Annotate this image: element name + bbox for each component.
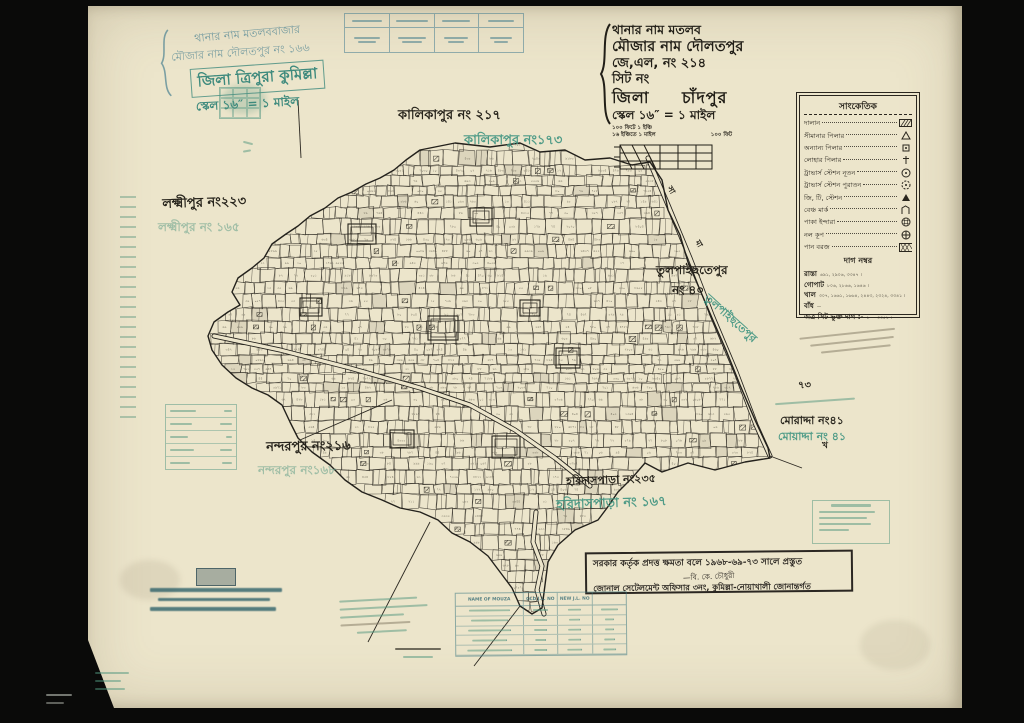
svg-text:৪৯: ৪৯: [463, 348, 467, 352]
svg-text:৬৯৪: ৬৯৪: [288, 358, 294, 362]
svg-text:১২: ১২: [530, 487, 534, 491]
svg-text:৪৭৮১: ৪৭৮১: [620, 325, 628, 329]
svg-text:২৮৭: ২৮৭: [407, 451, 413, 455]
svg-text:৭৮০: ৭৮০: [647, 386, 653, 390]
svg-text:৯২: ৯২: [512, 237, 516, 241]
svg-text:৭৯: ৭৯: [579, 189, 583, 193]
svg-text:৮২২: ৮২২: [368, 425, 374, 429]
svg-text:৪৮৩: ৪৮৩: [594, 237, 600, 241]
district-label: জিলা: [612, 88, 649, 107]
legend-item-label: ট্রাভার্স স্টেশন নূতন: [804, 167, 855, 179]
svg-text:৭২: ৭২: [294, 274, 298, 278]
svg-text:৭২: ৭২: [610, 439, 614, 443]
svg-text:১৫: ১৫: [341, 386, 345, 390]
svg-text:০৫৭: ০৫৭: [255, 299, 261, 303]
svg-text:২৯৬: ২৯৬: [690, 348, 696, 352]
legend-item: অন্যান্য পিলার: [804, 142, 912, 154]
svg-text:০৫৫: ০৫৫: [462, 500, 468, 504]
svg-text:৩৮: ৩৮: [380, 451, 384, 455]
svg-text:৫৬: ৫৬: [323, 325, 327, 329]
svg-text:০১: ০১: [480, 398, 484, 402]
svg-text:৭৭: ৭৭: [549, 211, 553, 215]
svg-text:০৯০৮: ০৯০৮: [693, 398, 701, 402]
svg-text:৫৬৪: ৫৬৪: [308, 425, 314, 429]
svg-text:৮০: ৮০: [397, 313, 401, 317]
svg-text:৪৪৩: ৪৪৩: [417, 211, 423, 215]
dag-row: খাল৩০৭, ১৬৬১, ১৬৬৪, ২৪৪৩, ২৩২৪, ৩৩৪১ ।: [804, 289, 912, 300]
svg-text:৫২৩: ৫২৩: [732, 451, 738, 455]
svg-text:৪২৮: ৪২৮: [296, 398, 302, 402]
svg-text:৯১৮৩: ৯১৮৩: [565, 156, 573, 160]
legend-item: সীমানার পিলার: [804, 129, 912, 141]
gt-station-icon: [899, 193, 912, 202]
svg-text:৩০: ৩০: [496, 412, 500, 416]
svg-text:০৬: ০৬: [713, 425, 717, 429]
svg-text:৫৭: ৫৭: [690, 451, 694, 455]
svg-text:৪৮: ৪৮: [615, 425, 619, 429]
svg-text:৫২৯: ৫২৯: [608, 313, 614, 317]
svg-text:৭৬৫: ৭৬৫: [511, 169, 517, 173]
table-column: [390, 14, 435, 52]
dag-row: রাস্তা৬৯১, ২৯০৬, ৩৩৪৭ ।: [804, 268, 912, 279]
svg-text:০০৯: ০০৯: [538, 249, 544, 253]
svg-text:০৭৬: ০৭৬: [676, 439, 682, 443]
svg-text:১৬৬: ১৬৬: [406, 237, 412, 241]
svg-text:২৬৫: ২৬৫: [724, 412, 730, 416]
press-stamp: [150, 588, 290, 611]
svg-text:১৫: ১৫: [508, 348, 512, 352]
svg-text:৪৬০: ৪৬০: [713, 348, 719, 352]
svg-text:৮৪: ৮৪: [436, 412, 440, 416]
svg-text:১৫: ১৫: [314, 249, 318, 253]
svg-text:৩১৩: ৩১৩: [489, 398, 495, 402]
svg-text:৬১: ৬১: [346, 475, 350, 479]
svg-text:৪৪: ৪৪: [435, 451, 439, 455]
svg-text:১৫: ১৫: [431, 299, 435, 303]
svg-text:৬২৮: ৬২৮: [503, 564, 509, 568]
svg-text:৮৯০: ৮৯০: [696, 412, 702, 416]
svg-text:৪০: ৪০: [414, 348, 418, 352]
svg-text:৭১৫৪: ৭১৫৪: [643, 189, 651, 193]
svg-text:৩৫৭: ৩৫৭: [592, 211, 598, 215]
svg-text:৬৪২৭: ৬৪২৭: [581, 249, 589, 253]
svg-text:৭৫৬: ৭৫৬: [445, 299, 451, 303]
svg-text:১৮২: ১৮২: [455, 527, 461, 531]
svg-text:২২৪: ২২৪: [294, 348, 300, 352]
district-value: চাঁদপুর: [682, 88, 727, 107]
svg-text:৯৪২: ৯৪২: [410, 261, 416, 265]
svg-text:৫৮৬: ৫৮৬: [400, 200, 406, 204]
svg-text:৮১১: ৮১১: [505, 541, 511, 545]
svg-text:১৫৫: ১৫৫: [503, 299, 509, 303]
svg-text:২৩: ২৩: [446, 237, 450, 241]
svg-text:৭০৩: ৭০৩: [496, 386, 502, 390]
svg-text:৫৯: ৫৯: [241, 313, 245, 317]
table-column: [345, 14, 390, 52]
svg-text:৭৭১: ৭৭১: [719, 398, 725, 402]
svg-text:২১: ২১: [261, 261, 265, 265]
svg-text:১৯: ১৯: [283, 325, 287, 329]
svg-text:০৮৯৩: ০৮৯৩: [256, 358, 264, 362]
bench-mark-icon: [899, 205, 912, 215]
svg-text:৩৮: ৩৮: [429, 274, 433, 278]
map-label: তুলপাইছতেপুর: [656, 262, 728, 282]
svg-text:৭৩৮: ৭৩৮: [693, 325, 699, 329]
svg-text:৭১: ৭১: [584, 451, 588, 455]
svg-text:১২৬: ১২৬: [364, 225, 370, 229]
diagonal-scale-bar: [612, 141, 716, 175]
svg-text:৩১২: ৩১২: [725, 386, 731, 390]
svg-text:৬৫৯: ৬৫৯: [408, 358, 414, 362]
svg-text:৩৪২: ৩৪২: [226, 348, 232, 352]
svg-text:৭২: ৭২: [437, 487, 441, 491]
svg-text:৫৮৭৭: ৫৮৭৭: [705, 376, 713, 380]
svg-text:৪৬৭: ৪৬৭: [581, 313, 587, 317]
svg-text:৭৯১: ৭৯১: [243, 367, 249, 371]
svg-text:৪৬২: ৪৬২: [365, 386, 371, 390]
svg-text:৮৫০: ৮৫০: [555, 425, 561, 429]
legend-item: দালান: [804, 117, 912, 129]
map-label: হরিদাসপাড়া নং ১৬৭: [556, 492, 667, 517]
svg-text:০০৮৯: ০০৮৯: [416, 249, 424, 253]
svg-text:৮০৬: ৮০৬: [593, 367, 599, 371]
svg-text:৩৯১: ৩৯১: [417, 325, 423, 329]
svg-text:৭৮৭২: ৭৮৭২: [363, 376, 371, 380]
svg-text:১০: ১০: [638, 376, 642, 380]
svg-text:২০: ২০: [478, 299, 482, 303]
svg-text:৫৭: ৫৭: [479, 249, 483, 253]
svg-text:১০৯: ১০৯: [489, 179, 495, 183]
svg-text:৫৩০: ৫৩০: [613, 376, 619, 380]
svg-text:১৫: ১৫: [654, 237, 658, 241]
svg-text:১৭২: ১৭২: [553, 475, 559, 479]
svg-text:৫১: ৫১: [677, 313, 681, 317]
svg-text:৭৮: ৭৮: [527, 425, 531, 429]
svg-text:৭৫: ৭৫: [559, 358, 563, 362]
svg-text:১৭৯: ১৭৯: [534, 225, 540, 229]
svg-text:৭৬২৫: ৭৬২৫: [592, 376, 600, 380]
svg-text:১২: ১২: [231, 367, 235, 371]
svg-text:৭২১: ৭২১: [412, 337, 418, 341]
legend-item: ট্রাভার্স স্টেশন পুরাতন: [804, 179, 912, 191]
svg-text:৮৮: ৮৮: [713, 367, 717, 371]
svg-text:২৫: ২৫: [358, 348, 362, 352]
svg-text:২০৩২: ২০৩২: [517, 386, 525, 390]
svg-text:৬৩৪: ৬৩৪: [322, 237, 328, 241]
svg-text:১১: ১১: [668, 313, 672, 317]
svg-text:৩০: ৩০: [564, 211, 568, 215]
svg-text:১০: ১০: [433, 169, 437, 173]
svg-text:৬৯: ৬৯: [599, 398, 603, 402]
legend-item: বেঞ্চ মার্ক: [804, 204, 912, 216]
svg-text:২০৪৩: ২০৪৩: [532, 156, 540, 160]
svg-text:২৯০: ২৯০: [677, 325, 683, 329]
svg-text:৫০২: ৫০২: [569, 439, 575, 443]
svg-text:৪৯০: ৪৯০: [590, 337, 596, 341]
svg-text:৬৮৭১: ৬৮৭১: [568, 425, 576, 429]
svg-text:৮৩: ৮৩: [302, 386, 306, 390]
svg-text:৭৫৩: ৭৫৩: [676, 451, 682, 455]
other-pillar-icon: [899, 144, 912, 152]
svg-text:১৩: ১৩: [267, 286, 271, 290]
legend-title: সাংকেতিক: [804, 99, 912, 115]
svg-text:৯৪৭: ৯৪৭: [266, 367, 272, 371]
svg-text:১২১: ১২১: [520, 348, 526, 352]
svg-text:২৭: ২৭: [626, 200, 630, 204]
sheet-number: সিট নং: [612, 72, 812, 88]
svg-text:৬৯: ৬৯: [222, 325, 226, 329]
svg-text:৪৯৫: ৪৯৫: [643, 337, 649, 341]
svg-text:৩৫: ৩৫: [277, 286, 281, 290]
svg-text:৬১৭: ৬১৭: [548, 169, 554, 173]
svg-text:৮১২: ৮১২: [448, 358, 454, 362]
svg-text:১৯: ১৯: [543, 274, 547, 278]
svg-text:২৮৯: ২৮৯: [523, 367, 529, 371]
svg-text:৪৪: ৪৪: [258, 376, 262, 380]
left-reference-table: [165, 404, 237, 470]
svg-text:৩৬৪: ৩৬৪: [644, 211, 650, 215]
svg-text:২৮৭: ২৮৭: [487, 358, 493, 362]
svg-text:৩৩৮: ৩৩৮: [574, 451, 580, 455]
svg-text:০৯: ০৯: [647, 451, 651, 455]
dag-row: অত্র সিট ভুক্ত দাগ :-১ — ৩৩৫১ ।: [804, 311, 912, 322]
svg-text:৪০৪: ৪০৪: [572, 412, 578, 416]
svg-text:৬৭২: ৬৭২: [357, 286, 363, 290]
map-label: মোয়াদ্দা নং ৪১: [778, 428, 846, 447]
svg-text:৭৩৫: ৭৩৫: [535, 358, 541, 362]
svg-text:৯৪: ৯৪: [616, 451, 620, 455]
svg-text:২৩৩: ২৩৩: [538, 527, 544, 531]
small-stamp-box: [196, 568, 236, 586]
svg-text:২৬৭: ২৬৭: [535, 325, 541, 329]
svg-text:১৮১: ১৮১: [320, 398, 326, 402]
svg-text:৭১০: ৭১০: [546, 386, 552, 390]
svg-text:০৯৩: ০৯৩: [458, 200, 464, 204]
pan-boroj-icon: [899, 243, 912, 252]
svg-text:১৯০: ১৯০: [427, 462, 433, 466]
svg-text:৫০: ৫০: [663, 398, 667, 402]
svg-text:৯৩: ৯৩: [515, 564, 519, 568]
svg-text:০৮: ০৮: [588, 286, 592, 290]
svg-text:৩৫১: ৩৫১: [419, 274, 425, 278]
svg-text:৮৮: ৮৮: [478, 367, 482, 371]
map-label: লক্ষ্মীপুর নং ১৬৫: [158, 219, 240, 239]
svg-text:৫৬: ৫৬: [383, 398, 387, 402]
svg-text:৯৭৬: ৯৭৬: [441, 261, 447, 265]
table-column: [479, 14, 523, 52]
svg-text:৭৫৮: ৭৫৮: [592, 189, 598, 193]
svg-text:৭৪: ৭৪: [567, 313, 571, 317]
svg-text:৩০৫৪: ৩০৫৪: [396, 169, 404, 173]
svg-text:৪০: ৪০: [672, 462, 676, 466]
legend-item-label: ট্রাভার্স স্টেশন পুরাতন: [804, 179, 861, 191]
svg-text:৬১: ৬১: [417, 475, 421, 479]
svg-text:৯৯৯: ৯৯৯: [413, 462, 419, 466]
scale-note-2: ১৬ ইঞ্চিতে ১ মাইল ১০০ ফিট: [612, 132, 732, 139]
svg-text:৮৪০৪: ৮৪০৪: [636, 225, 644, 229]
svg-text:৮৬: ৮৬: [460, 439, 464, 443]
svg-text:৫৬৯: ৫৬৯: [237, 325, 243, 329]
svg-text:৬১: ৬১: [493, 367, 497, 371]
svg-text:৭২২৯: ৭২২৯: [450, 475, 458, 479]
svg-text:৩৩৮: ৩৩৮: [532, 451, 538, 455]
svg-text:৯৮৬: ৯৮৬: [435, 425, 441, 429]
map-label: নং ৪০: [672, 282, 704, 302]
svg-text:৬৩৫: ৬৩৫: [375, 225, 381, 229]
mini-reference-grid: [219, 87, 261, 119]
svg-text:৫১: ৫১: [543, 500, 547, 504]
legend-item: পাকা ইন্দারা: [804, 216, 912, 228]
svg-text:৩১৮: ৩১৮: [700, 348, 706, 352]
svg-text:২১: ২১: [355, 425, 359, 429]
svg-text:৫৫৫৬: ৫৫৫৬: [531, 179, 539, 183]
svg-text:৭০: ৭০: [287, 376, 291, 380]
svg-text:০২২৮: ০২২৮: [429, 325, 437, 329]
svg-text:২৬৫: ২৬৫: [470, 200, 476, 204]
svg-text:৯৭: ৯৭: [374, 249, 378, 253]
svg-text:৩২৩২: ৩২৩২: [442, 514, 450, 518]
header-old-jl: OLD J.L. NO: [524, 593, 559, 605]
svg-text:৯৫২৩: ৯৫২৩: [336, 261, 344, 265]
tube-well-icon: [899, 230, 912, 240]
svg-text:৯১৮: ৯১৮: [345, 274, 351, 278]
svg-text:৫১: ৫১: [509, 412, 513, 416]
svg-text:১২২: ১২২: [474, 487, 480, 491]
svg-text:৩০২: ৩০২: [473, 261, 479, 265]
svg-text:৭২: ৭২: [595, 439, 599, 443]
svg-text:৫৬৩: ৫৬৩: [440, 386, 446, 390]
svg-text:১৪: ১৪: [551, 487, 555, 491]
svg-text:৮৫৯৭: ৮৫৯৭: [412, 412, 420, 416]
svg-text:৮২৪: ৮২৪: [747, 451, 753, 455]
map-label: নন্দরপুর নং২১৬: [266, 437, 351, 459]
svg-text:১৩৯৪: ১৩৯৪: [625, 412, 633, 416]
svg-text:৯৬: ৯৬: [460, 286, 464, 290]
svg-text:৮২৯: ৮২৯: [342, 286, 348, 290]
district-line: জিলা চাঁদপুর: [612, 88, 812, 108]
svg-text:৪৫০: ৪৫০: [423, 237, 429, 241]
svg-text:৩০: ৩০: [269, 325, 273, 329]
svg-text:১৮৪৯: ১৮৪৯: [562, 527, 570, 531]
svg-text:৪৩৫: ৪৩৫: [465, 156, 471, 160]
svg-text:০৭৫৭: ০৭৫৭: [514, 585, 522, 589]
svg-text:৮৯: ৮৯: [364, 211, 368, 215]
dag-row: বাঁধ—: [804, 300, 912, 311]
handwritten-note: [395, 648, 465, 658]
legend-item-label: লোহার পিলার: [804, 154, 841, 166]
svg-text:৮৫৪: ৮৫৪: [388, 475, 394, 479]
svg-text:৭৮০: ৭৮০: [590, 325, 596, 329]
svg-text:১৭: ১৭: [620, 261, 624, 265]
svg-text:০২: ০২: [470, 169, 474, 173]
svg-text:৫৫: ৫৫: [519, 286, 523, 290]
svg-text:৯৩৭: ৯৩৭: [652, 412, 658, 416]
map-label: হরিদাসপাড়া নং২৩৫: [566, 470, 656, 492]
map-label: ৭৩: [798, 378, 811, 395]
boundary-pillar-icon: [899, 131, 912, 140]
svg-text:৪৬৪: ৪৬৪: [568, 237, 574, 241]
map-label: কালিকাপুর নং ২১৭: [398, 106, 501, 127]
svg-text:৪১০: ৪১০: [606, 299, 612, 303]
svg-text:২০৭: ২০৭: [711, 358, 717, 362]
svg-text:৫৮৯৬: ৫৮৯৬: [269, 249, 277, 253]
mouza-name: মৌজার নাম দৌলতপুর: [612, 38, 812, 56]
svg-text:৮৯৪: ৮৯৪: [547, 358, 553, 362]
svg-text:৪০৫৬: ৪০৫৬: [487, 261, 495, 265]
jl-number: জে,এল, নং ২১৪: [612, 56, 812, 72]
svg-text:৮৩৪৫: ৮৩৪৫: [652, 376, 660, 380]
svg-text:৬২২: ৬২২: [593, 249, 599, 253]
svg-text:৬২: ৬২: [282, 398, 286, 402]
svg-text:২৮: ২৮: [554, 439, 558, 443]
svg-text:৭৬: ৭৬: [572, 358, 576, 362]
svg-text:১২: ১২: [557, 169, 561, 173]
svg-text:৪৩৫: ৪৩৫: [278, 299, 284, 303]
svg-text:৪৩৪: ৪৩৪: [362, 475, 368, 479]
svg-text:১৩৭: ১৩৭: [617, 211, 623, 215]
svg-text:৮৪: ৮৪: [387, 462, 391, 466]
svg-text:৭৭৪: ৭৭৪: [515, 527, 521, 531]
svg-text:৯০: ৯০: [466, 249, 470, 253]
svg-text:৮৬: ৮৬: [252, 337, 256, 341]
svg-text:৬৩৭: ৬৩৭: [594, 299, 600, 303]
svg-text:৫২৩৮: ৫২৩৮: [646, 179, 654, 183]
mouza-jl-table: NAME OF MOUZA OLD J.L. NO NEW J.L. NO: [455, 591, 628, 656]
svg-text:৭৩৫: ৭৩৫: [629, 337, 635, 341]
svg-text:৫৭৭: ৫৭৭: [460, 337, 466, 341]
corner-note: [95, 672, 135, 690]
svg-text:৭৭০: ৭৭০: [588, 398, 594, 402]
svg-text:৭০৪: ৭০৪: [433, 358, 439, 362]
svg-text:৮২: ৮২: [405, 325, 409, 329]
svg-text:৮৬: ৮৬: [490, 156, 494, 160]
svg-text:০৮৭: ০৮৭: [675, 376, 681, 380]
header-name-of-mouza: NAME OF MOUZA: [456, 593, 524, 606]
svg-text:৭০৩০: ৭০৩০: [419, 169, 427, 173]
traverse-station-new-icon: [899, 168, 912, 178]
svg-text:৬০৫: ৬০৫: [562, 337, 568, 341]
svg-text:৩১১: ৩১১: [309, 412, 315, 416]
margin-mark: [46, 694, 76, 704]
svg-text:৯৫: ৯৫: [567, 200, 571, 204]
handwritten-note: [339, 595, 441, 634]
svg-text:২০২০: ২০২০: [566, 225, 574, 229]
svg-text:৪১৪: ৪১৪: [419, 286, 425, 290]
svg-text:৮৬: ৮৬: [459, 211, 463, 215]
sheet-header-block: থানার নাম মতলব মৌজার নাম দৌলতপুর জে,এল, …: [612, 22, 812, 175]
revision-note-box: [812, 500, 890, 544]
map-label: লক্ষ্মীপুর নং২২৩: [162, 192, 247, 216]
svg-text:৫৯৯: ৫৯৯: [674, 358, 680, 362]
svg-text:২৪: ২৪: [469, 376, 473, 380]
svg-text:৫১৪: ৫১৪: [253, 325, 259, 329]
svg-text:৮৮১১: ৮৮১১: [473, 475, 481, 479]
svg-text:৮১৪: ৮১৪: [497, 274, 503, 278]
svg-text:৫৮০: ৫৮০: [452, 376, 458, 380]
svg-text:৩৯: ৩৯: [245, 299, 249, 303]
svg-text:০২৬২: ০২৬২: [367, 189, 375, 193]
svg-text:৮৯৭৩: ৮৯৭৩: [369, 274, 377, 278]
svg-text:৯৯: ৯৯: [285, 261, 289, 265]
certification-stamp-box: সরকার কর্তৃক প্রদত্ত ক্ষমতা বলে ১৯৬৮-৬৯-…: [585, 550, 853, 595]
svg-text:৯৬: ৯৬: [456, 451, 460, 455]
svg-text:৫৩৪৪: ৫৩৪৪: [512, 500, 520, 504]
svg-text:৩০: ৩০: [413, 398, 417, 402]
svg-text:১৫: ১৫: [505, 200, 509, 204]
svg-text:২৭: ২৭: [648, 439, 652, 443]
svg-text:২৮: ২৮: [453, 386, 457, 390]
svg-text:২৯৩: ২৯৩: [462, 299, 468, 303]
